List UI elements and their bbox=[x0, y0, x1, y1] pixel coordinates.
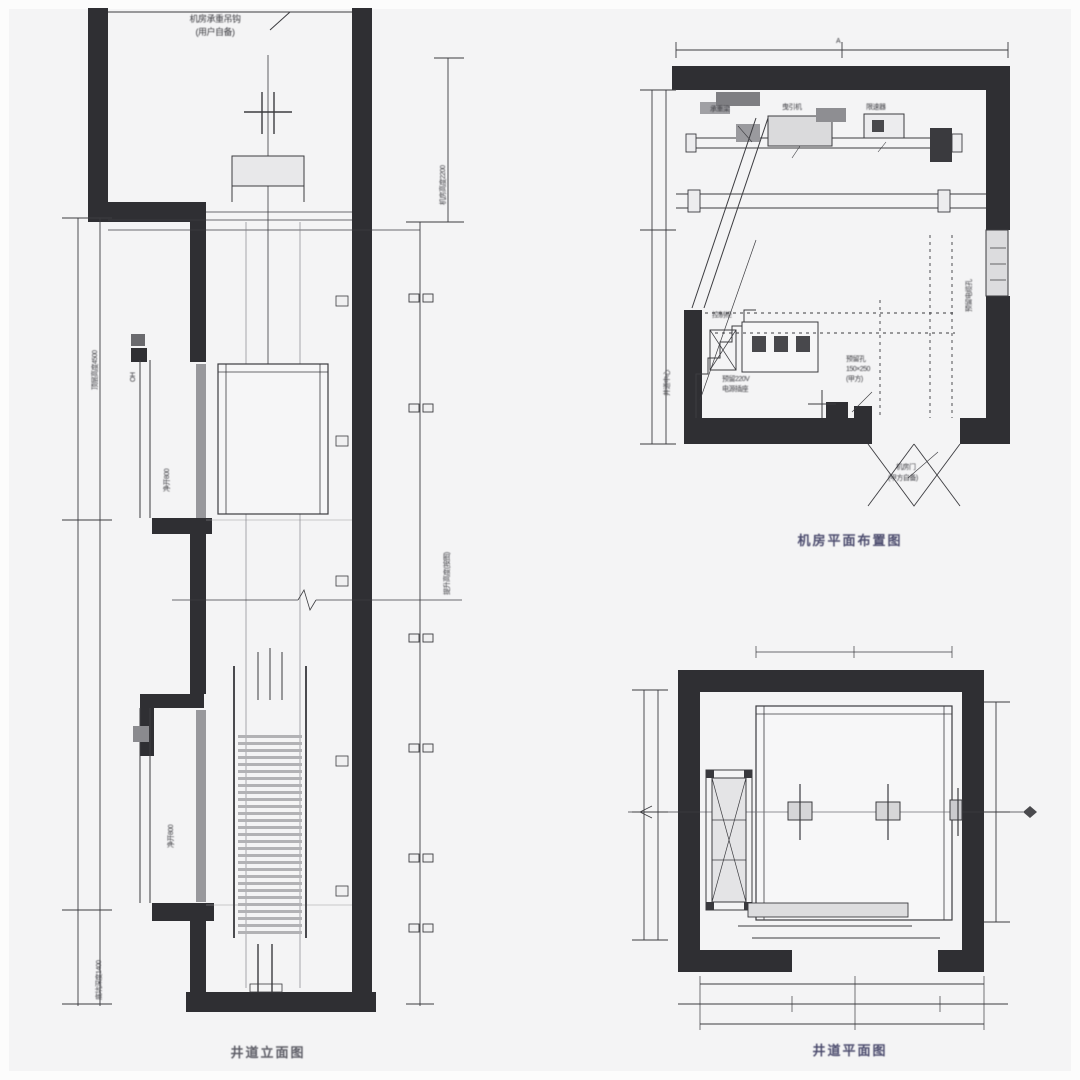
shaft-plan-drawing bbox=[628, 646, 1037, 1030]
mr-beam-label: 承重梁 bbox=[710, 106, 730, 114]
dim-top-floor-height: 顶层高度4500 bbox=[92, 350, 100, 390]
mr-top-dim-label: A bbox=[836, 38, 840, 46]
shaft-plan-caption: 井道平面图 bbox=[778, 1040, 922, 1059]
traction-machine-plan bbox=[700, 92, 952, 162]
dim-upper-door-width: 净开800 bbox=[164, 469, 172, 492]
machine-room-plan-drawing bbox=[640, 42, 1010, 506]
ventilation-louver bbox=[986, 230, 1008, 296]
control-cabinet bbox=[710, 322, 818, 372]
mr-door-label-line1: 机房门 bbox=[896, 464, 916, 472]
dim-machine-room-height: 机房高度2200 bbox=[440, 165, 448, 205]
drawing-sheet: 机房承重吊钩 (用户自备) 机房高度2200 顶层高度4500 OH 提升高度(… bbox=[0, 0, 1080, 1080]
pit-ladder bbox=[234, 648, 306, 938]
shaft-elevation-drawing bbox=[62, 8, 464, 1012]
mr-hole-label-line2: 150×250 bbox=[846, 366, 870, 374]
elevation-caption: 井道立面图 bbox=[200, 1042, 336, 1061]
lower-landing-door bbox=[133, 708, 206, 903]
mr-socket-label-line1: 预留220V bbox=[722, 376, 749, 384]
dim-lower-door-width: 净开800 bbox=[168, 825, 176, 848]
rail-brackets bbox=[336, 296, 348, 896]
mr-cabinet-label: 控制柜 bbox=[712, 312, 732, 320]
mr-socket-label-line2: 电源插座 bbox=[722, 386, 748, 394]
car-plan bbox=[756, 706, 952, 920]
elevation-left-dimension-lines bbox=[62, 218, 112, 1006]
hook-label-line2: (用户自备) bbox=[150, 27, 280, 37]
elevator-car-section bbox=[218, 364, 328, 514]
mr-left-axis-label: 井道中心 bbox=[664, 370, 672, 396]
section-break-line bbox=[172, 590, 462, 610]
mr-cable-hole-label: 预留电缆孔 bbox=[966, 280, 974, 313]
elevation-right-dimension-line bbox=[406, 58, 464, 1006]
dim-pit-depth: 底坑深度1400 bbox=[96, 960, 104, 1000]
mr-machine-label: 曳引机 bbox=[782, 104, 802, 112]
pit-buffer bbox=[250, 944, 282, 992]
mr-governor-label: 限速器 bbox=[866, 104, 886, 112]
counterweight-plan bbox=[706, 770, 752, 910]
mr-hole-label-line3: (甲方) bbox=[846, 376, 863, 384]
hook-label-line1: 机房承重吊钩 bbox=[150, 14, 280, 24]
stair-and-brace bbox=[692, 118, 768, 418]
machine-room-plan-caption: 机房平面布置图 bbox=[762, 530, 938, 549]
dim-travel-height: 提升高度(按图) bbox=[444, 552, 452, 595]
hoist-machine bbox=[232, 55, 304, 368]
dim-top-floor-small: OH bbox=[130, 373, 138, 383]
mr-door-label-line2: (甲方自备) bbox=[888, 475, 918, 483]
mr-hole-label-line1: 预留孔 bbox=[846, 356, 866, 364]
